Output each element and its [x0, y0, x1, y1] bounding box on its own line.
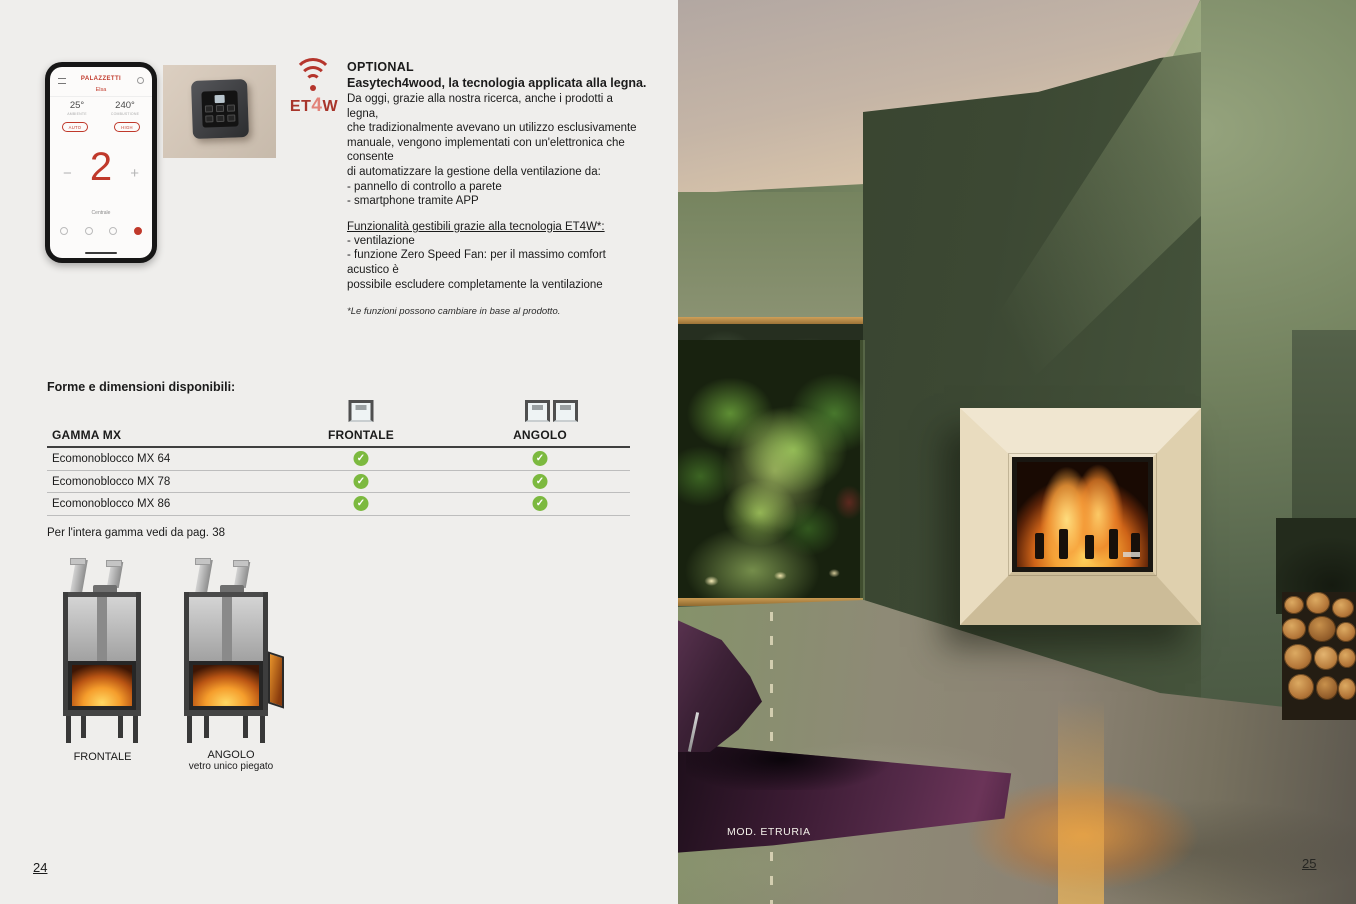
leg [81, 716, 86, 738]
leg [260, 716, 265, 743]
corner-glass [268, 651, 284, 708]
leg [204, 716, 209, 738]
page-number-left: 24 [33, 860, 47, 875]
ambient-temp: 25° AMBIENTE [52, 100, 102, 116]
log [1314, 646, 1338, 670]
log-end [1035, 533, 1044, 559]
log [1332, 598, 1354, 618]
control-panel-screen [201, 90, 238, 127]
leg [187, 716, 192, 743]
table-row: Ecomonoblocco MX 64 ✓ ✓ [47, 448, 630, 471]
log [1338, 678, 1356, 700]
fire-reflection-streak [1058, 700, 1104, 904]
table-footer-note: Per l'intera gamma vedi da pag. 38 [47, 527, 225, 539]
forms-section-title: Forme e dimensioni disponibili: [47, 380, 235, 394]
log [1316, 676, 1338, 700]
center-duct [97, 597, 107, 663]
pipe-cap [233, 560, 249, 567]
catalog-spread: PALAZZETTI Elsa 25° AMBIENTE 240° COMBUS… [0, 0, 1356, 904]
angolo-shape-icon [553, 400, 578, 422]
log [1288, 674, 1314, 700]
home-indicator [85, 252, 117, 255]
check-icon: ✓ [354, 474, 369, 489]
wifi-dot-icon [310, 85, 316, 91]
angolo-shape-icon [525, 400, 550, 422]
wood-beam [678, 317, 864, 324]
log-end [1059, 529, 1068, 559]
flame-icon [109, 227, 117, 235]
firebox [189, 661, 263, 710]
log [1282, 618, 1306, 640]
wall-fireplace [960, 408, 1201, 625]
plus-button: + [130, 165, 139, 182]
angolo-product-image [172, 558, 290, 748]
center-duct [222, 597, 232, 663]
footnote: *Le funzioni possono cambiare in base al… [347, 306, 647, 317]
log-end [1109, 529, 1118, 559]
log [1284, 644, 1312, 670]
fireplace-glass [1012, 457, 1153, 572]
check-icon: ✓ [354, 496, 369, 511]
shape-icons-row [47, 400, 630, 426]
auto-mode-button: AUTO [62, 122, 88, 132]
smartphone-app-image: PALAZZETTI Elsa 25° AMBIENTE 240° COMBUS… [45, 62, 157, 263]
frontale-caption: FRONTALE [55, 751, 150, 763]
combustion-temp: 240° COMBUSTIONE [100, 100, 150, 116]
leg [118, 716, 123, 738]
log [1308, 616, 1336, 642]
log-stack [1282, 592, 1356, 720]
sage-wall-band [678, 192, 864, 318]
table-header-row: GAMMA MX FRONTALE ANGOLO [47, 426, 630, 448]
page-number-right: 25 [1302, 856, 1316, 871]
fireplace-interior-photo: MOD. ETRURIA 25 [678, 0, 1356, 904]
panel-button [216, 115, 224, 122]
leg [133, 716, 138, 743]
log-end [1085, 535, 1094, 559]
base-bar [63, 710, 141, 716]
panel-button [216, 105, 224, 112]
table-row: Ecomonoblocco MX 86 ✓ ✓ [47, 493, 630, 516]
angolo-subcaption: vetro unico piegato [160, 761, 302, 772]
leg [66, 716, 71, 743]
light-icon [85, 227, 93, 235]
functions-heading: Funzionalità gestibili grazie alla tecno… [347, 221, 647, 233]
table-row: Ecomonoblocco MX 78 ✓ ✓ [47, 471, 630, 494]
app-bottom-nav [60, 227, 142, 235]
centrale-label: Centrale [50, 210, 152, 216]
fan-icon [60, 227, 68, 235]
frame-post [136, 592, 141, 714]
pipe-cap [106, 560, 122, 567]
frontale-shape-icon [349, 400, 374, 422]
firebox [68, 661, 136, 710]
frontale-product-image [55, 558, 150, 748]
panel-display [215, 95, 225, 103]
check-icon: ✓ [533, 474, 548, 489]
availability-table: GAMMA MX FRONTALE ANGOLO Ecomonoblocco M… [47, 400, 630, 516]
log [1336, 622, 1356, 642]
control-panel [191, 79, 249, 139]
check-icon: ✓ [354, 451, 369, 466]
optional-text-block: OPTIONAL Easytech4wood, la tecnologia ap… [347, 60, 647, 317]
settings-fan-icon [134, 227, 142, 235]
et4w-logo: ET4W [288, 58, 340, 116]
wall-control-panel-image [163, 65, 276, 158]
panel-button [227, 104, 235, 111]
section-title: Easytech4wood, la tecnologia applicata a… [347, 76, 647, 90]
log [1338, 648, 1356, 668]
column-header-angolo: ANGOLO [513, 428, 567, 442]
palazzetti-badge [1123, 552, 1140, 557]
angolo-caption: ANGOLO [172, 749, 290, 761]
optional-kicker: OPTIONAL [347, 60, 647, 74]
model-caption: MOD. ETRURIA [727, 826, 811, 838]
check-icon: ✓ [533, 496, 548, 511]
panel-button [227, 114, 235, 121]
body-text: Da oggi, grazie alla nostra ricerca, anc… [347, 92, 647, 209]
log [1306, 592, 1330, 614]
divider [50, 96, 152, 97]
panel-button [205, 105, 213, 112]
column-header-frontale: FRONTALE [328, 428, 394, 442]
high-mode-button: HIGH [114, 122, 140, 132]
log [1284, 596, 1304, 614]
pipe-cap [70, 558, 86, 565]
pipe-cap [195, 558, 211, 565]
check-icon: ✓ [533, 451, 548, 466]
leg [243, 716, 248, 738]
functions-text: - ventilazione - funzione Zero Speed Fan… [347, 234, 647, 292]
app-model-name: Elsa [50, 87, 152, 93]
phone-screen: PALAZZETTI Elsa 25° AMBIENTE 240° COMBUS… [50, 67, 152, 258]
panel-button [205, 115, 213, 122]
base-bar [184, 710, 268, 716]
et4w-wordmark: ET4W [288, 95, 340, 117]
column-header-model: GAMMA MX [52, 428, 121, 442]
app-brand: PALAZZETTI [50, 76, 152, 82]
garden-window [678, 340, 864, 602]
